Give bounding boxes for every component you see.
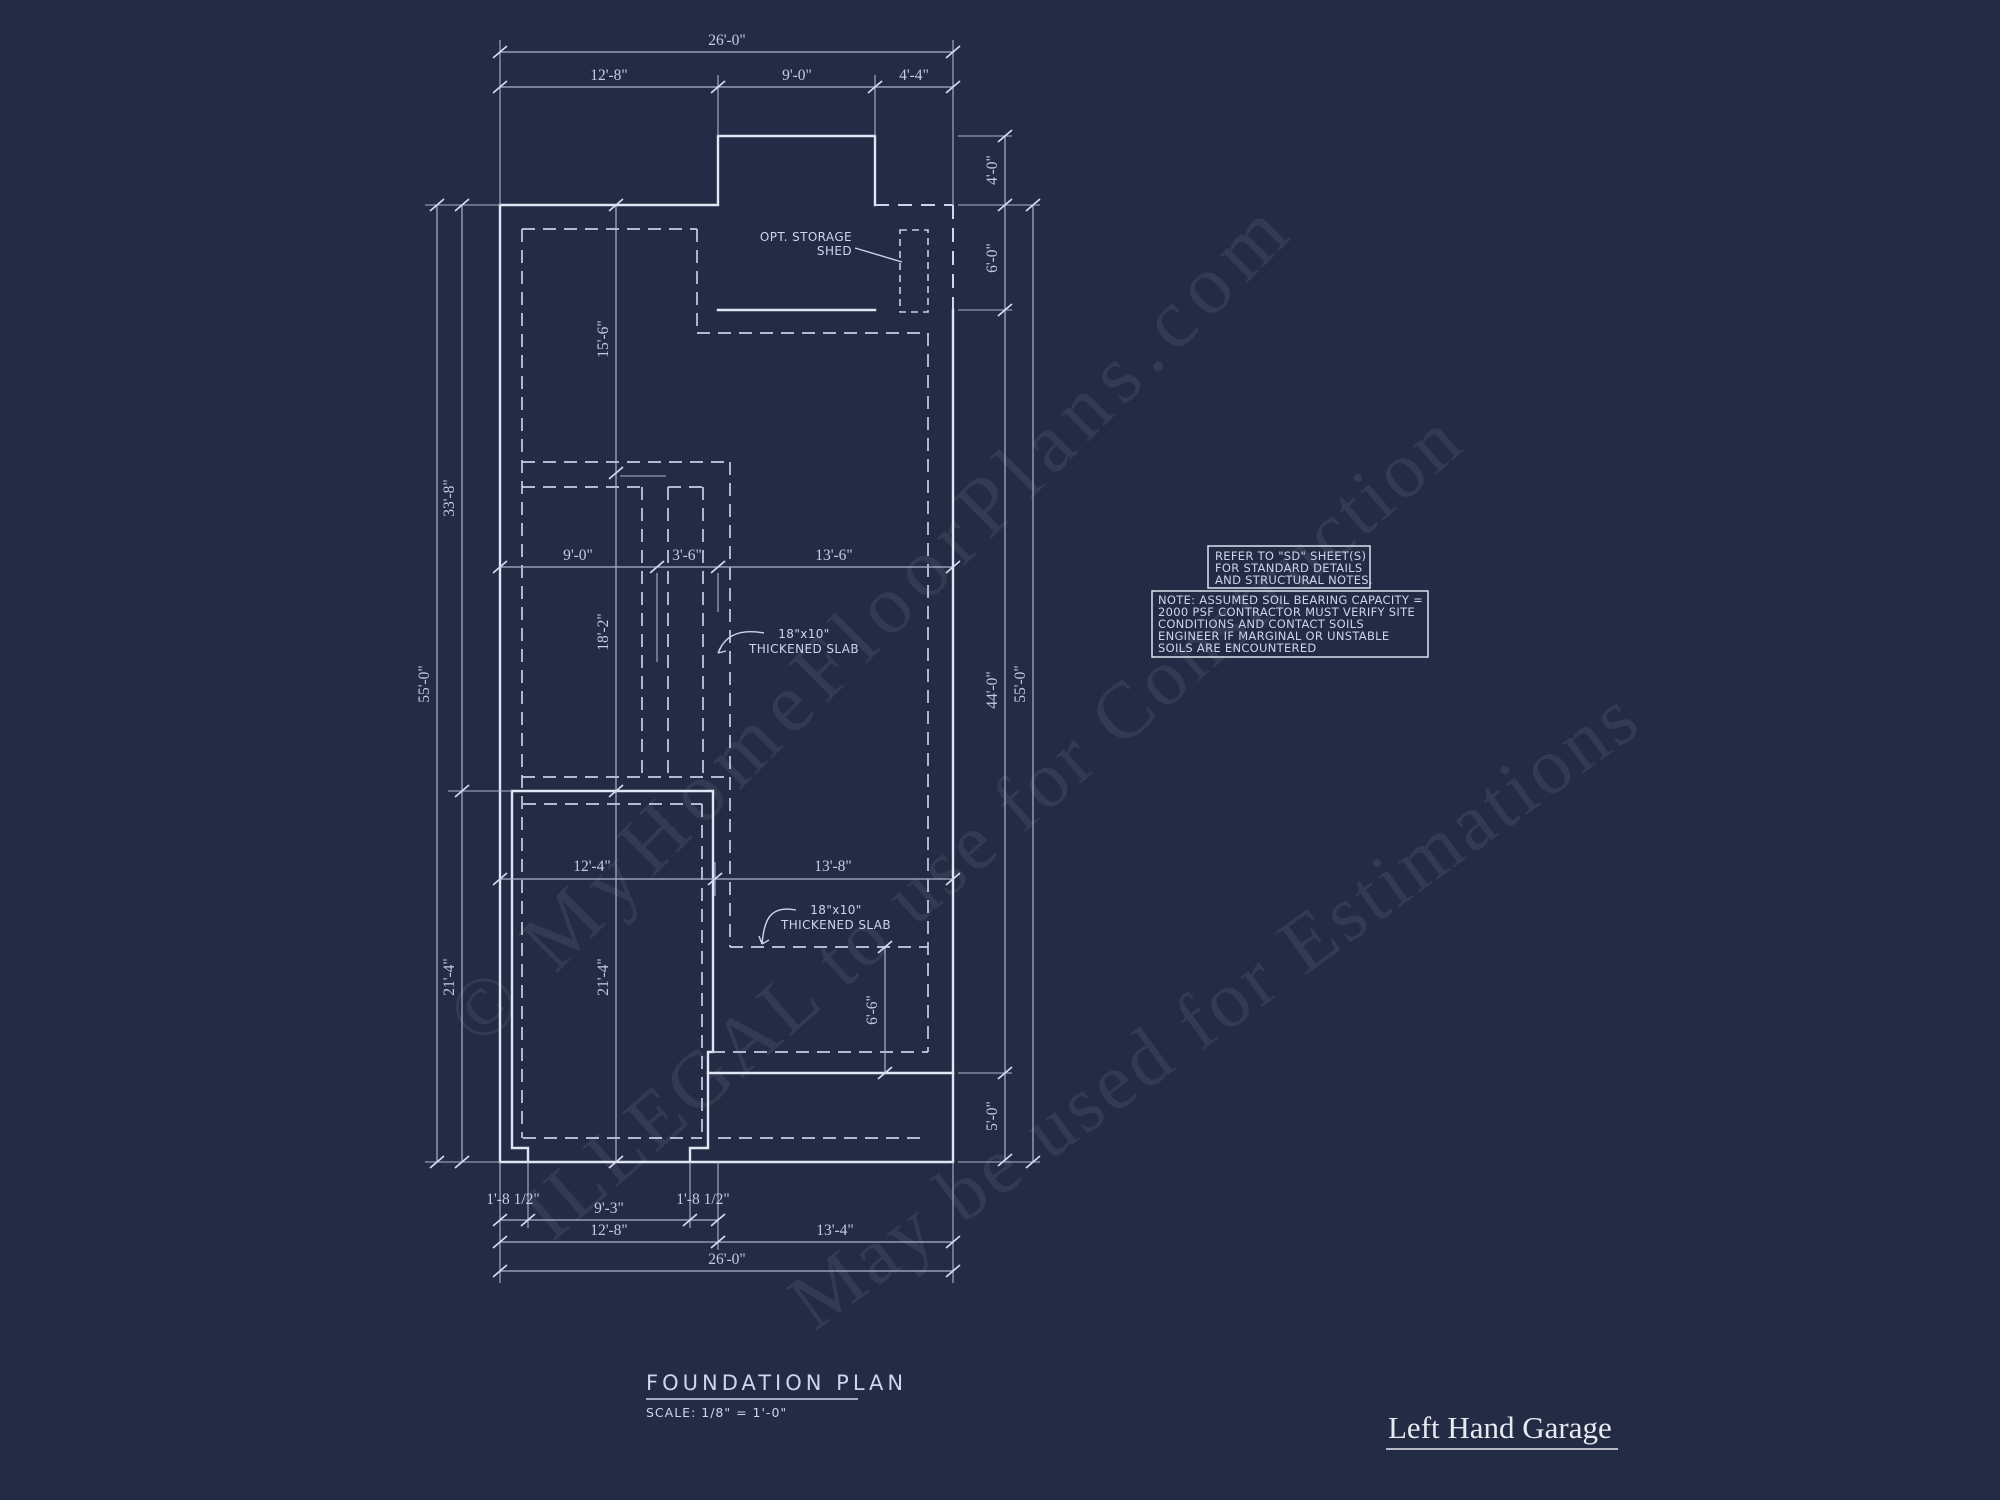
dim-top-mid: 9'-0" (782, 67, 812, 84)
thickened-slab1-label-line2: THICKENED SLAB (748, 642, 859, 656)
thickened-slab1-label-line1: 18"x10" (778, 627, 829, 641)
dim-top-left: 12'-8" (590, 67, 628, 84)
sheet-label: Left Hand Garage (1388, 1410, 1612, 1445)
drawing-title: FOUNDATION PLAN (646, 1371, 907, 1395)
title-block: FOUNDATION PLAN SCALE: 1/8" = 1'-0" (646, 1371, 907, 1420)
dim-shed-height: 4'-0" (984, 155, 1001, 185)
dim-pier-left: 1'-8 1/2" (486, 1191, 539, 1208)
dim-stoop-depth: 6'-6" (864, 995, 881, 1025)
dim-mid-center: 3'-6" (672, 547, 702, 564)
dim-bottom-overall: 26'-0" (708, 1251, 746, 1268)
opt-shed-footing-box (900, 230, 928, 312)
watermark: © MyHomeFloorPlans.com ILLEGAL to use fo… (429, 179, 1657, 1347)
opt-storage-shed-label-line2: SHED (817, 244, 852, 258)
refer-note-line3: AND STRUCTURAL NOTES. (1215, 573, 1373, 587)
dim-left-upper: 33'-8" (441, 479, 458, 517)
dim-inner-upper: 15'-6" (595, 320, 612, 358)
dim-left-lower: 21'-4" (441, 958, 458, 996)
dim-left-overall: 55'-0" (416, 665, 433, 703)
dim-shed-depth: 6'-0" (984, 243, 1001, 273)
foundation-plan-sheet: © MyHomeFloorPlans.com ILLEGAL to use fo… (0, 0, 2000, 1500)
dim-mid-right: 13'-6" (815, 547, 853, 564)
dim-right-stoop: 5'-0" (984, 1101, 1001, 1131)
dim-right-overall: 55'-0" (1012, 665, 1029, 703)
opt-storage-shed-label-line1: OPT. STORAGE (760, 230, 852, 244)
thickened-slab2-label-line1: 18"x10" (810, 903, 861, 917)
watermark-line3: May be used for Estimations (773, 671, 1656, 1346)
dim-top-overall: 26'-0" (708, 32, 746, 49)
dim-mid-left: 9'-0" (563, 547, 593, 564)
thickened-slab2-label-line2: THICKENED SLAB (780, 918, 891, 932)
dim-pier-right: 1'-8 1/2" (676, 1191, 729, 1208)
dim-stoop-width: 13'-8" (814, 858, 852, 875)
dim-top-right: 4'-4" (899, 67, 929, 84)
dim-inner-mid: 18'-2" (595, 613, 612, 651)
dim-bottom-right: 13'-4" (816, 1222, 854, 1239)
sheet-label-block: Left Hand Garage (1386, 1410, 1618, 1449)
dim-bottom-left: 12'-8" (590, 1222, 628, 1239)
opt-storage-shed-leader (855, 248, 902, 262)
dim-garage-width: 12'-4" (573, 858, 611, 875)
dim-door-width: 9'-3" (594, 1200, 624, 1217)
notes-block: REFER TO "SD" SHEET(S) FOR STANDARD DETA… (1152, 546, 1428, 657)
dim-right-main: 44'-0" (984, 671, 1001, 709)
soil-note-line5: SOILS ARE ENCOUNTERED (1158, 641, 1317, 655)
dim-inner-lower: 21'-4" (595, 958, 612, 996)
drawing-scale: SCALE: 1/8" = 1'-0" (646, 1405, 787, 1420)
